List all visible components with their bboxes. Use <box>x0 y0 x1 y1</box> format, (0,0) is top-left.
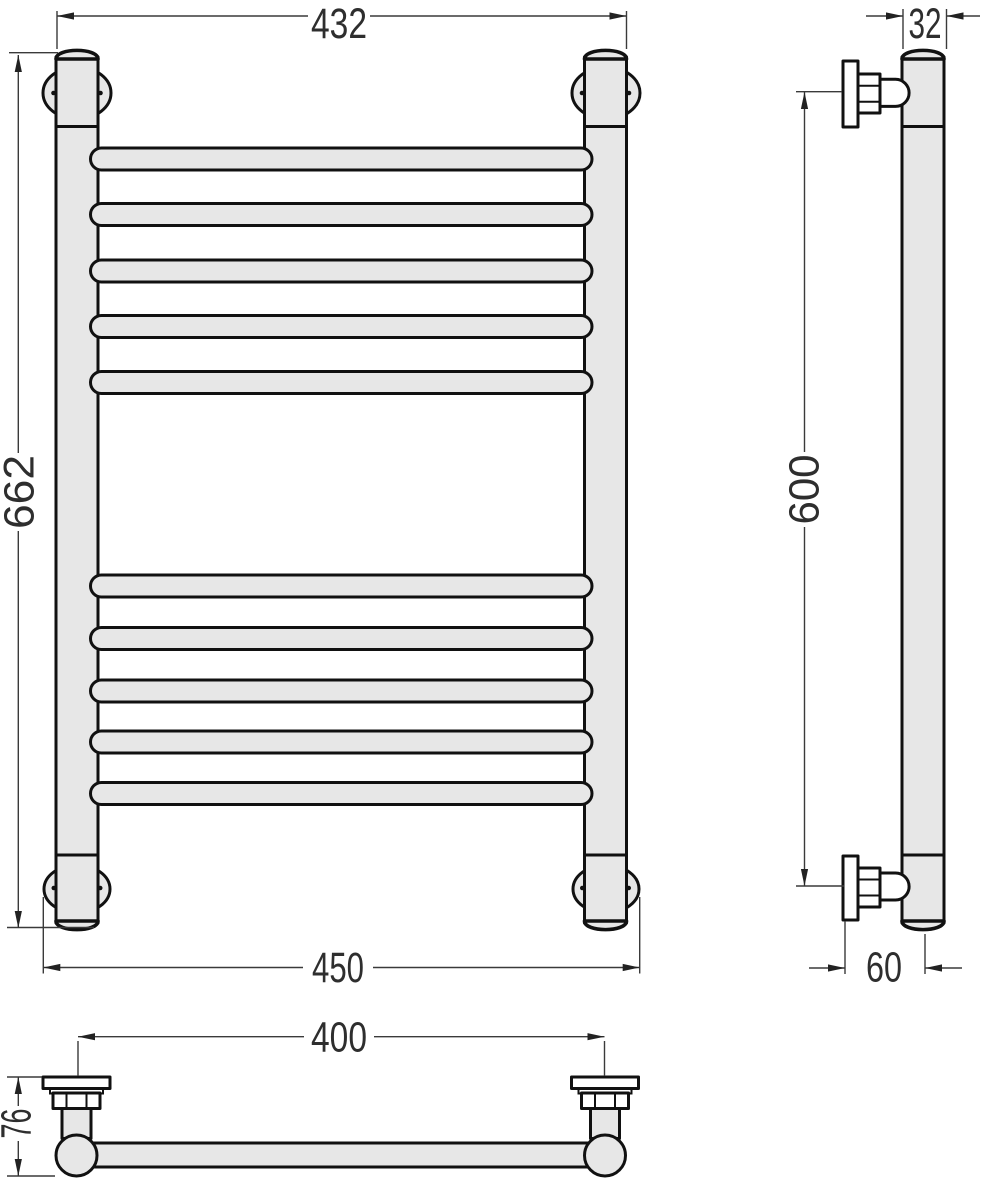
plan-post-section-right <box>585 1135 626 1176</box>
dim-label-front-height: 662 <box>0 455 44 529</box>
plan-wall-flange-left <box>43 1077 110 1089</box>
post-cap-top-left <box>56 50 98 59</box>
dim-label-front-top-width: 432 <box>311 0 367 48</box>
rung-3 <box>91 260 593 282</box>
dim-label-plan-mount-width: 400 <box>311 1014 367 1062</box>
screw-dot <box>626 886 631 891</box>
arrowhead-right <box>828 964 845 971</box>
arrowhead-left <box>925 964 942 971</box>
hex-nut-facets-plan <box>67 1093 616 1109</box>
arrowhead-right <box>886 12 903 19</box>
side-view <box>843 50 944 929</box>
post-cap-bottom-left <box>56 921 98 930</box>
arrowhead-left <box>43 964 60 971</box>
side-hex-nut-bottom <box>858 868 880 907</box>
dim-label-plan-depth: 76 <box>0 1109 41 1139</box>
rung-2 <box>91 204 593 226</box>
rung-1 <box>91 148 593 170</box>
hex-nut-facets <box>858 86 880 896</box>
dimension-front-top-width: 432 <box>57 0 627 49</box>
arrowhead-down <box>15 1159 22 1176</box>
rung-10 <box>91 783 593 805</box>
plan-wall-flange-right <box>572 1077 639 1089</box>
screw-dot <box>52 886 57 891</box>
arrowhead-up <box>15 55 22 72</box>
rung-6 <box>91 575 593 597</box>
rung-8 <box>91 680 593 702</box>
dim-label-side-height: 600 <box>781 455 829 525</box>
arrowhead-down <box>801 869 808 886</box>
arrowhead-left <box>78 1033 95 1040</box>
dimension-side-height: 600 <box>781 92 845 886</box>
dim-label-side-bottom-offset: 60 <box>866 944 902 992</box>
screw-dot <box>580 91 585 96</box>
screw-dot <box>627 91 632 96</box>
dim-label-side-top-depth: 32 <box>909 0 942 48</box>
screw-dot <box>98 886 103 891</box>
plan-view <box>43 1077 639 1176</box>
side-post-cap-top <box>902 50 944 59</box>
side-wall-flange-top <box>843 61 858 127</box>
dimension-side-bottom-offset: 60 <box>809 921 962 992</box>
side-post-cap-bottom <box>902 921 944 930</box>
plan-crossbar <box>76 1143 606 1167</box>
dimension-front-bottom-width: 450 <box>43 897 639 992</box>
rung-7 <box>91 628 593 650</box>
dimension-side-top-depth: 32 <box>866 0 980 49</box>
arrowhead-up <box>15 1077 22 1094</box>
side-post <box>902 57 944 923</box>
plan-hex-nut-left <box>53 1093 100 1109</box>
post-cap-top-right <box>585 50 627 59</box>
arrowhead-right <box>610 12 627 19</box>
dim-label-front-bottom-width: 450 <box>312 944 364 992</box>
front-view <box>43 50 640 929</box>
arrowhead-right <box>623 964 640 971</box>
plan-post-section-left <box>56 1135 97 1176</box>
arrowhead-left <box>57 12 74 19</box>
side-hex-nut-top <box>858 74 880 113</box>
arrowhead-up <box>801 92 808 109</box>
plan-hex-nut-right <box>582 1093 629 1109</box>
screw-dot <box>580 886 585 891</box>
arrowhead-left <box>947 12 964 19</box>
rung-4 <box>91 316 593 338</box>
dimension-plan-depth: 76 <box>0 1077 55 1176</box>
post-cap-bottom-right <box>585 921 627 930</box>
side-wall-flange-bottom <box>843 856 858 920</box>
rung-9 <box>91 731 593 753</box>
screw-dot <box>98 91 103 96</box>
arrowhead-right <box>588 1033 605 1040</box>
arrowhead-down <box>15 911 22 928</box>
rung-5 <box>91 372 593 394</box>
dimension-plan-mount-width: 400 <box>78 1014 605 1077</box>
towel-rail-technical-drawing: 432 662 450 32 600 60 <box>0 0 981 1180</box>
screw-dot <box>51 91 56 96</box>
